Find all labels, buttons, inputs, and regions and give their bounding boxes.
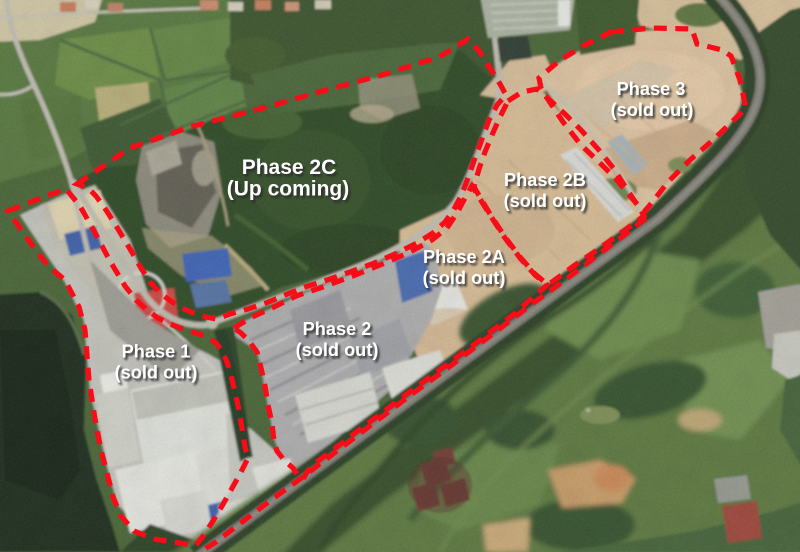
svg-text:(sold out): (sold out) — [423, 268, 506, 288]
svg-text:Phase 2: Phase 2 — [303, 319, 372, 339]
svg-text:Phase 3: Phase 3 — [617, 79, 686, 99]
svg-text:(sold out): (sold out) — [611, 100, 694, 120]
svg-text:Phase 2A: Phase 2A — [423, 247, 505, 267]
svg-text:Phase 2C: Phase 2C — [242, 156, 337, 179]
svg-text:Phase 2B: Phase 2B — [504, 170, 586, 190]
svg-text:(sold out): (sold out) — [504, 191, 587, 211]
svg-text:(sold out): (sold out) — [115, 363, 198, 383]
svg-text:(Up coming): (Up coming) — [227, 178, 349, 201]
svg-text:Phase 1: Phase 1 — [122, 342, 191, 362]
svg-text:(sold out): (sold out) — [296, 340, 379, 360]
